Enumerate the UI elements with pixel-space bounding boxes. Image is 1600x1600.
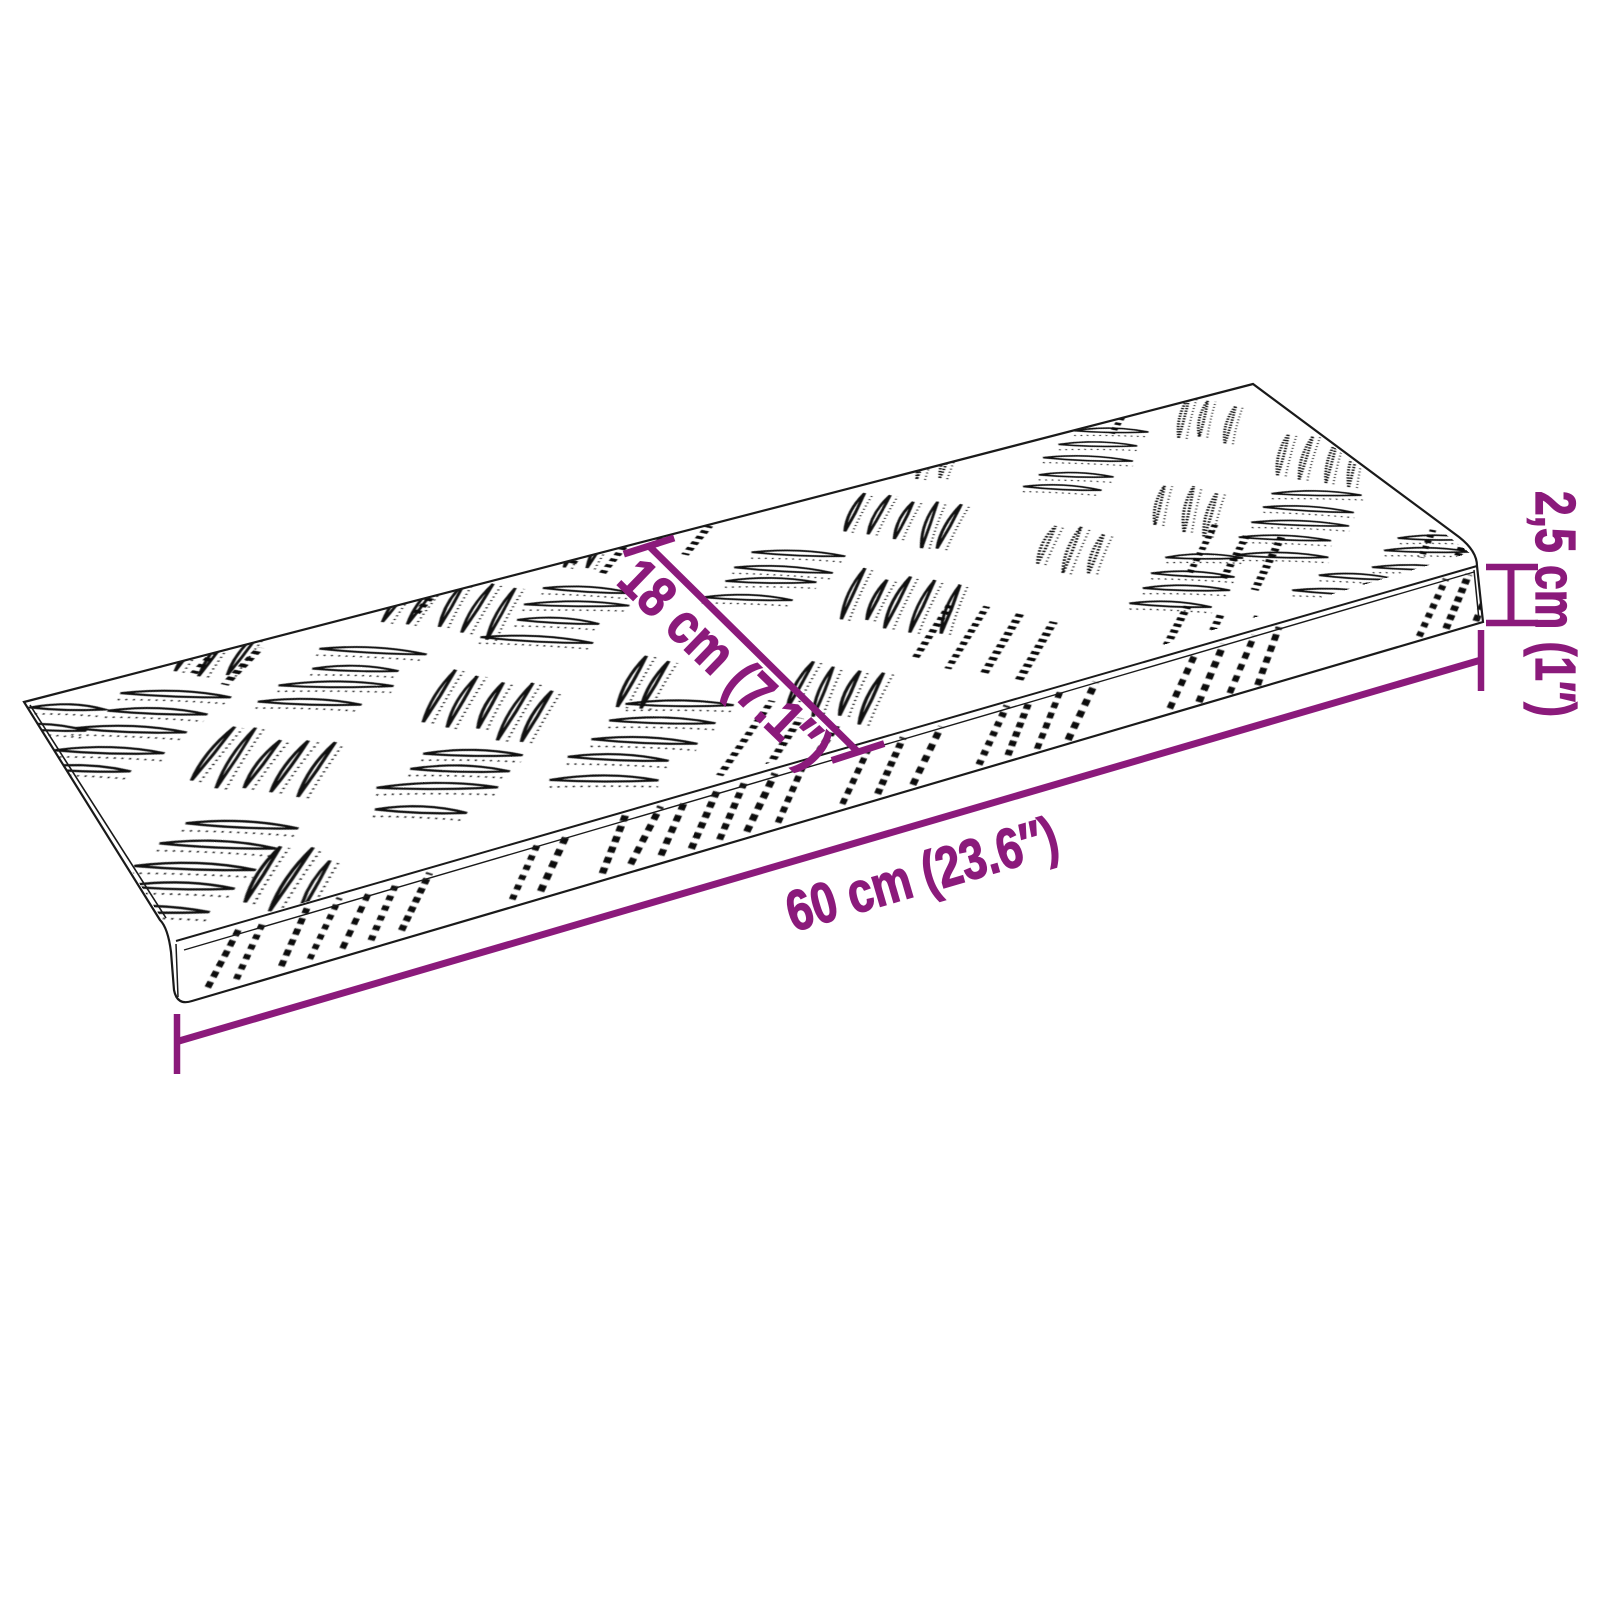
svg-text:2,5 cm (1″): 2,5 cm (1″) [1523,491,1587,717]
svg-text:18 cm (7.1″): 18 cm (7.1″) [606,546,845,780]
